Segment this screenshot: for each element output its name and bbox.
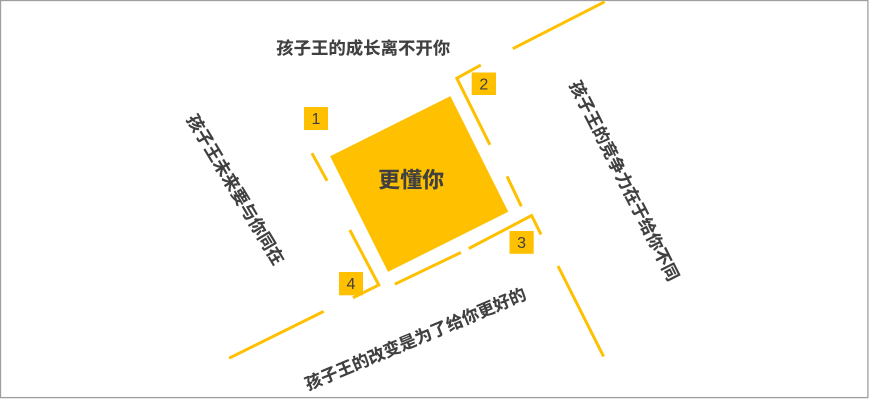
svg-text:3: 3 (517, 235, 526, 252)
svg-text:1: 1 (312, 111, 321, 128)
svg-text:4: 4 (347, 276, 356, 293)
svg-text:2: 2 (479, 76, 488, 93)
